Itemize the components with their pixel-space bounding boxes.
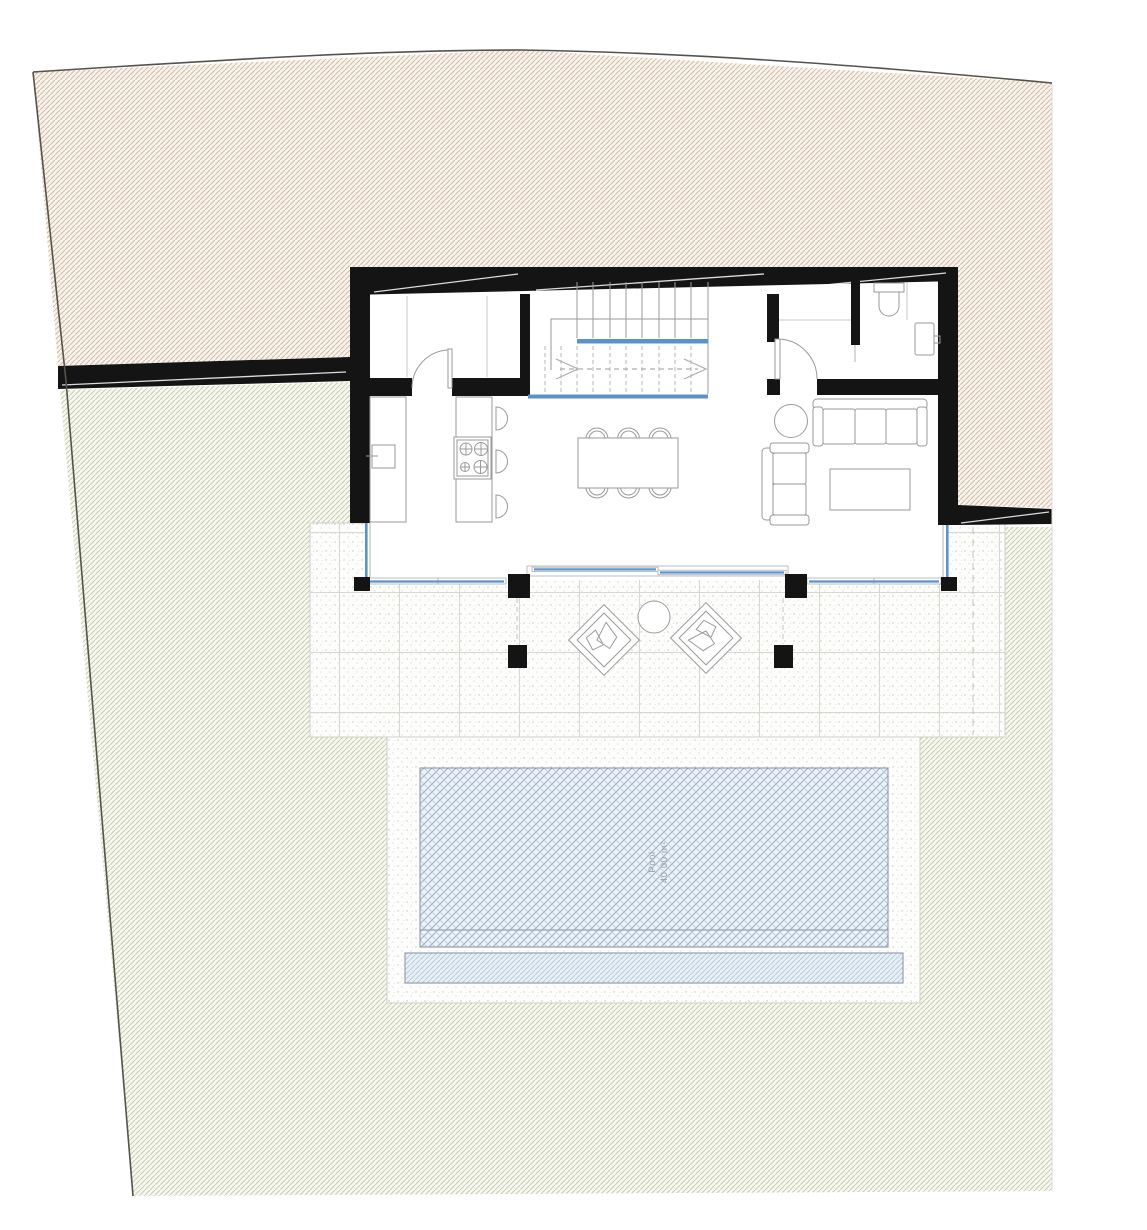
- stair-base-edge: [528, 395, 708, 399]
- dining-table: [578, 438, 678, 488]
- window-left: [368, 578, 506, 584]
- facade-post-large: [785, 574, 807, 598]
- dining-area: [578, 428, 678, 498]
- bathroom-partition: [851, 281, 860, 345]
- stove: [454, 437, 491, 479]
- facade-post-small: [354, 577, 370, 591]
- floor-plan-canvas: Pool 40.00 m²: [0, 0, 1147, 1230]
- side-table: [775, 405, 808, 438]
- loveseat: [762, 443, 809, 525]
- facade-post-small: [941, 577, 957, 591]
- facade-post-large: [508, 574, 530, 598]
- sofa-large: [813, 399, 927, 446]
- lounge-table: [638, 601, 670, 633]
- coffee-table: [830, 469, 910, 510]
- terrace-column: [774, 645, 793, 668]
- bathroom-west-wall: [767, 294, 779, 342]
- bathroom-south-wall: [817, 379, 950, 395]
- glazing-west: [365, 523, 368, 578]
- stair-landing-edge: [577, 339, 708, 344]
- glazing-east: [946, 525, 949, 578]
- window-right: [807, 578, 941, 584]
- stair-west-wall: [520, 294, 530, 396]
- retaining-wall-east: [958, 505, 1052, 525]
- window-center: [527, 566, 788, 576]
- west-wall: [350, 294, 370, 523]
- pool-label-line2: 40.00 m²: [659, 841, 670, 883]
- pool-label-line1: Pool: [647, 851, 658, 872]
- pool-overflow-channel: [405, 953, 903, 983]
- terrace-column: [508, 645, 527, 668]
- east-wall: [938, 280, 958, 525]
